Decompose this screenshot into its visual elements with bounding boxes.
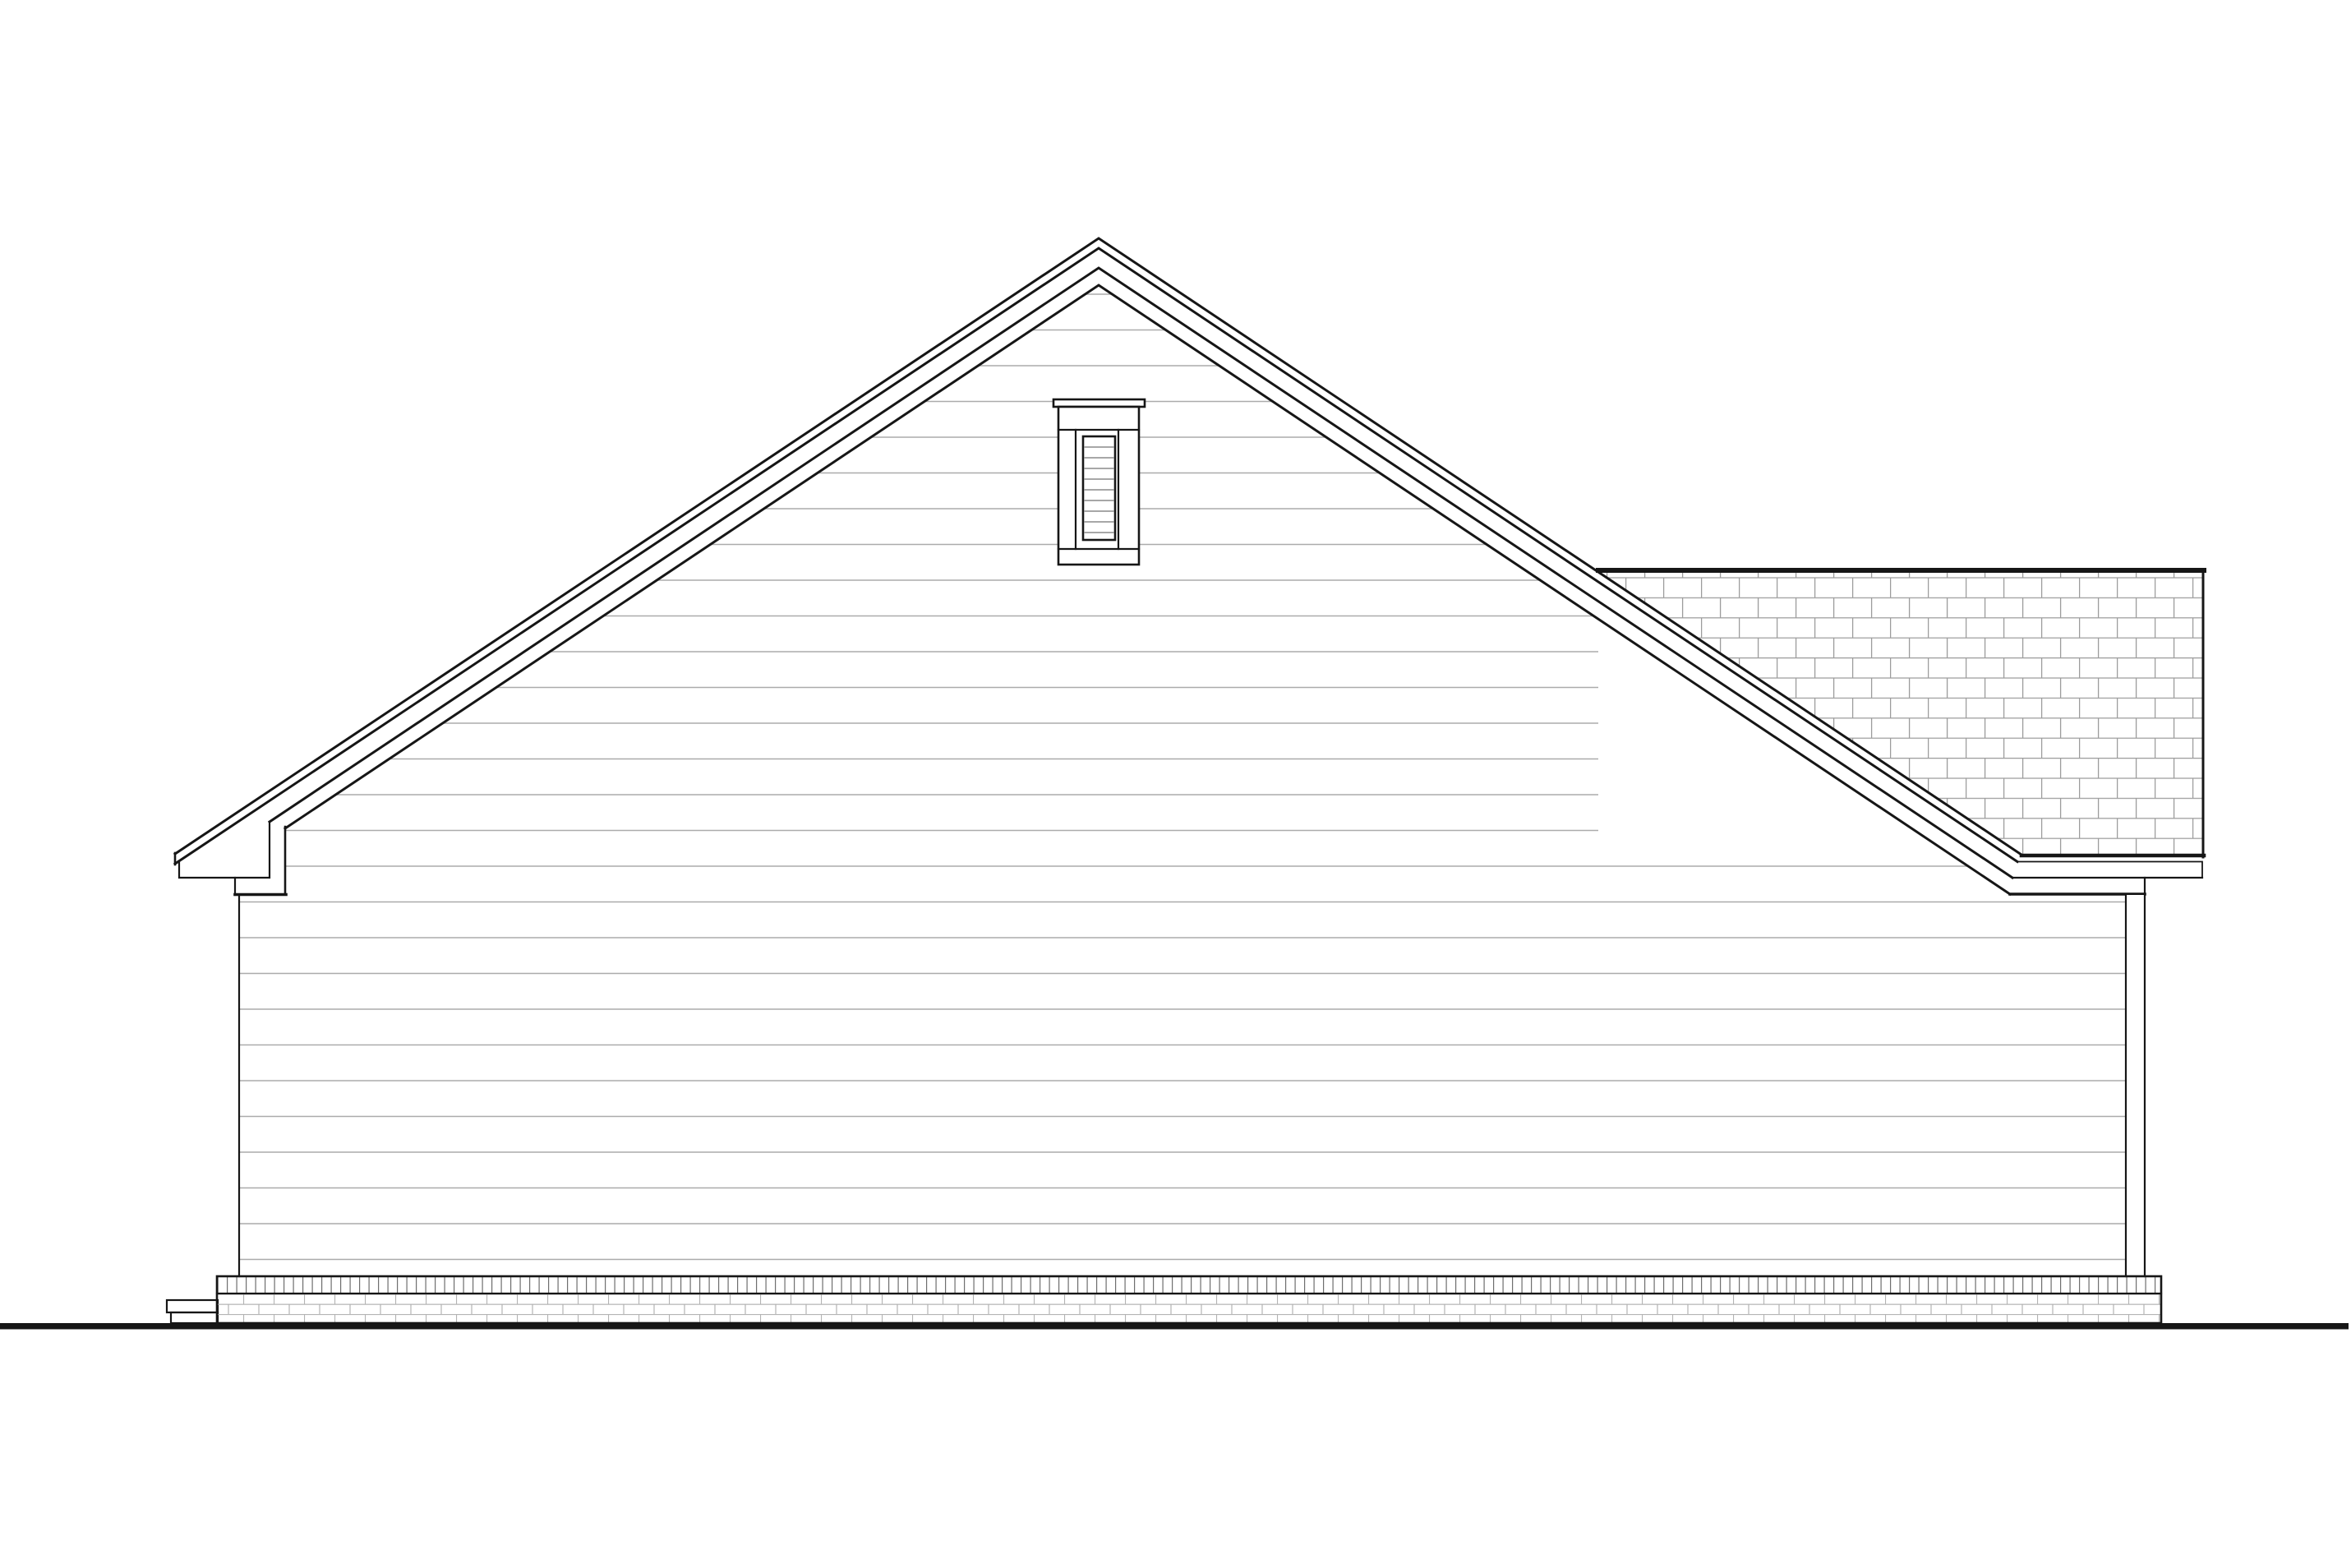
elevation-drawing-page — [0, 0, 2351, 1568]
side-elevation-drawing — [0, 0, 2351, 1568]
vent-louver-panel — [1083, 436, 1115, 540]
foundation-brick-courses — [217, 1294, 2161, 1323]
vent-cap — [1053, 399, 1145, 407]
left-eave-return — [179, 822, 286, 895]
attic-vent — [1053, 399, 1145, 565]
ground-line — [0, 1323, 2349, 1330]
foundation-soldier-course — [217, 1276, 2161, 1294]
right-corner-board — [2127, 895, 2144, 1276]
foundation-step-upper — [167, 1300, 218, 1312]
shingle-roof-right-wing — [1598, 570, 2204, 894]
drip-edge-line — [2017, 862, 2202, 879]
foundation-step-lower — [171, 1312, 218, 1323]
foundation — [167, 1276, 2161, 1323]
